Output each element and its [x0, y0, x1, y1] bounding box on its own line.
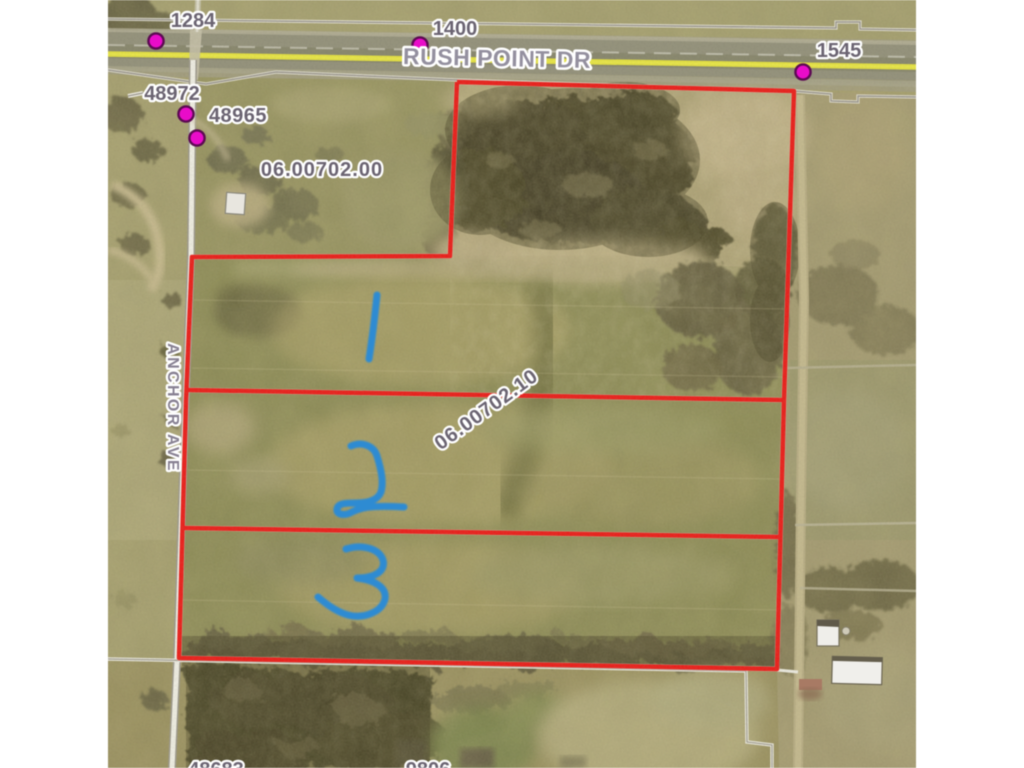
svg-text:06.00702.00: 06.00702.00: [261, 159, 383, 181]
svg-text:1284: 1284: [171, 10, 216, 32]
svg-text:RUSH POINT DR: RUSH POINT DR: [403, 43, 591, 73]
svg-text:1400: 1400: [433, 18, 478, 40]
svg-text:1545: 1545: [817, 40, 862, 62]
svg-text:48683: 48683: [188, 759, 244, 768]
svg-text:ANCHOR AVE: ANCHOR AVE: [164, 343, 181, 473]
svg-text:9806: 9806: [406, 759, 451, 768]
svg-text:48972: 48972: [144, 83, 200, 105]
svg-text:48965: 48965: [209, 105, 267, 127]
